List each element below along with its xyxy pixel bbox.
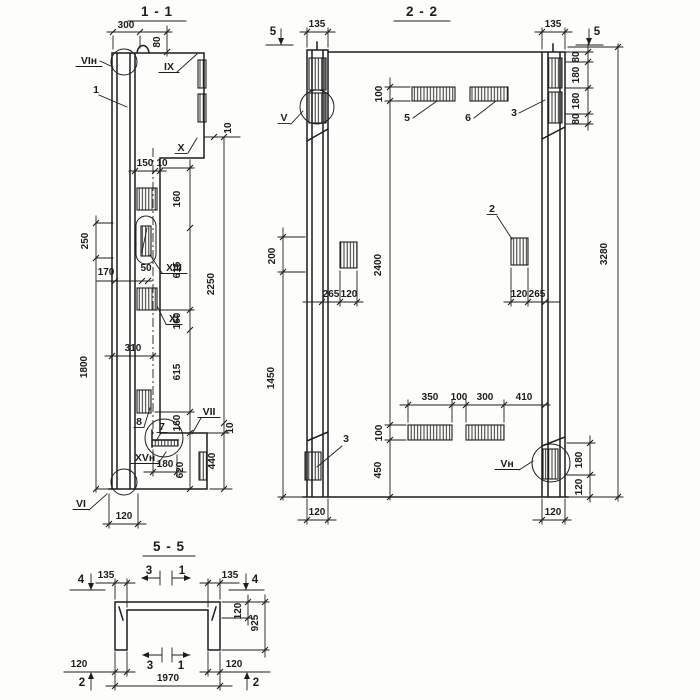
dimension-label: 10 <box>225 422 236 434</box>
section-marker-label: 4 <box>252 574 259 586</box>
section-2-2 <box>266 21 623 524</box>
dimension-label: 10 <box>223 122 234 134</box>
part-label: 2 <box>489 203 495 215</box>
embedded-plate <box>543 449 558 479</box>
part-label: V <box>280 112 287 124</box>
part-label: XIII <box>166 262 182 274</box>
section-title-5-5: 5 - 5 <box>153 539 185 554</box>
dimension-label: 410 <box>516 392 533 403</box>
dimension-label: 300 <box>477 392 494 403</box>
dimension-label: 170 <box>98 267 115 278</box>
embedded-plate <box>340 242 357 268</box>
dimension-label: 160 <box>172 190 183 207</box>
embedded-plate <box>548 92 562 123</box>
dimension-label: 3280 <box>599 242 610 265</box>
embedded-plate <box>137 390 151 413</box>
section-title-1-1: 1 - 1 <box>141 4 173 19</box>
part-label: VI <box>76 498 86 510</box>
dimension-label: 250 <box>80 232 91 249</box>
dimension-label: 300 <box>118 20 135 31</box>
drawing-canvas: 1 - 1 2 - 2 5 - 5 3008010150101606151606… <box>0 0 700 700</box>
section-marker-label: 4 <box>78 574 85 586</box>
section-marker-label: 3 <box>146 565 152 577</box>
dimension-ticks <box>112 580 268 689</box>
dimension-label: 120 <box>71 659 88 670</box>
dimension-label: 100 <box>451 392 468 403</box>
dimension-label: 135 <box>545 19 562 30</box>
part-label: XVн <box>135 452 155 464</box>
part-label: 3 <box>343 433 349 445</box>
dimension-label: 50 <box>140 263 152 274</box>
dimension-label: 120 <box>341 289 358 300</box>
dimension-label: 1800 <box>79 355 90 378</box>
structural-drawing: 1 - 1 2 - 2 5 - 5 3008010150101606151606… <box>0 0 700 700</box>
dimension-label: 160 <box>172 414 183 431</box>
embedded-plate <box>198 60 206 88</box>
part-label: XI <box>169 313 179 325</box>
dimension-label: 615 <box>172 363 183 380</box>
dimension-label: 200 <box>267 247 278 264</box>
embedded-plate-2 <box>511 238 528 265</box>
dimension-label: 180 <box>571 66 582 83</box>
dimension-label: 120 <box>116 511 133 522</box>
dimension-label: 135 <box>222 570 239 581</box>
dimension-label: 80 <box>571 113 582 125</box>
dimension-label: 100 <box>374 85 385 102</box>
dimension-label: 265 <box>529 289 546 300</box>
section-marker-label: 3 <box>147 660 153 672</box>
dimension-label: 450 <box>373 461 384 478</box>
dimension-label: 310 <box>125 343 142 354</box>
dimension-label: 120 <box>226 659 243 670</box>
embedded-plate <box>137 188 157 210</box>
section-marker-label: 1 <box>178 660 185 672</box>
dimension-label: 120 <box>233 602 244 619</box>
dimension-label: 2250 <box>206 272 217 295</box>
part-label: 8 <box>136 416 142 428</box>
part-label: 6 <box>465 112 471 124</box>
dimension-label: 80 <box>152 36 163 48</box>
dimension-label: 1970 <box>157 673 180 684</box>
part-label: IX <box>164 61 174 73</box>
embedded-plate <box>408 425 452 440</box>
embedded-plate <box>466 425 504 440</box>
dimension-label: 80 <box>571 51 582 63</box>
embedded-plate <box>309 58 326 90</box>
dimension-label: 180 <box>574 451 585 468</box>
section-marker-label: 2 <box>79 677 85 689</box>
embedded-plate <box>199 452 207 480</box>
embedded-plate-6 <box>470 87 508 101</box>
joint-circle-bottom <box>111 469 137 495</box>
section-marker-label: 5 <box>270 26 277 38</box>
dimension-label: 135 <box>309 19 326 30</box>
embedded-plate <box>137 288 157 310</box>
part-label: 5 <box>404 112 410 124</box>
section-marker-label: 1 <box>179 565 186 577</box>
embedded-plate <box>548 58 562 88</box>
dimension-label: 135 <box>98 570 115 581</box>
embedded-plate-5 <box>412 87 455 101</box>
part-label: VIн <box>81 55 97 67</box>
dimension-label: 10 <box>156 158 168 169</box>
dimension-label: 120 <box>545 507 562 518</box>
dimension-label: 180 <box>157 459 174 470</box>
section-title-2-2: 2 - 2 <box>406 4 438 19</box>
section-marker-label: 5 <box>594 26 601 38</box>
dimension-label: 265 <box>323 289 340 300</box>
part-label: 7 <box>159 421 165 433</box>
part-label: 1 <box>93 84 99 96</box>
dimension-label: 620 <box>175 461 186 478</box>
dimension-label: 150 <box>137 158 154 169</box>
dimension-label: 120 <box>511 289 528 300</box>
dimension-label: 440 <box>207 452 218 469</box>
dimension-label: 180 <box>571 92 582 109</box>
part-label: X <box>177 142 184 154</box>
dimension-label: 120 <box>309 507 326 518</box>
dimension-label: 100 <box>374 424 385 441</box>
part-label: 3 <box>511 107 517 119</box>
part-label: Vн <box>500 458 513 470</box>
dimension-label: 1450 <box>266 366 277 389</box>
dimension-label: 2400 <box>373 253 384 276</box>
part-label: VII <box>203 406 216 418</box>
dimension-label: 925 <box>250 614 261 631</box>
section-arrows <box>278 38 592 45</box>
channel-outline <box>115 602 220 650</box>
dimension-label: 120 <box>574 478 585 495</box>
embedded-plate <box>198 94 206 122</box>
embedded-plate <box>309 93 326 123</box>
section-marker-label: 2 <box>253 677 259 689</box>
leader-lines <box>291 100 545 470</box>
dimension-ticks <box>280 29 621 523</box>
dimension-label: 350 <box>422 392 439 403</box>
